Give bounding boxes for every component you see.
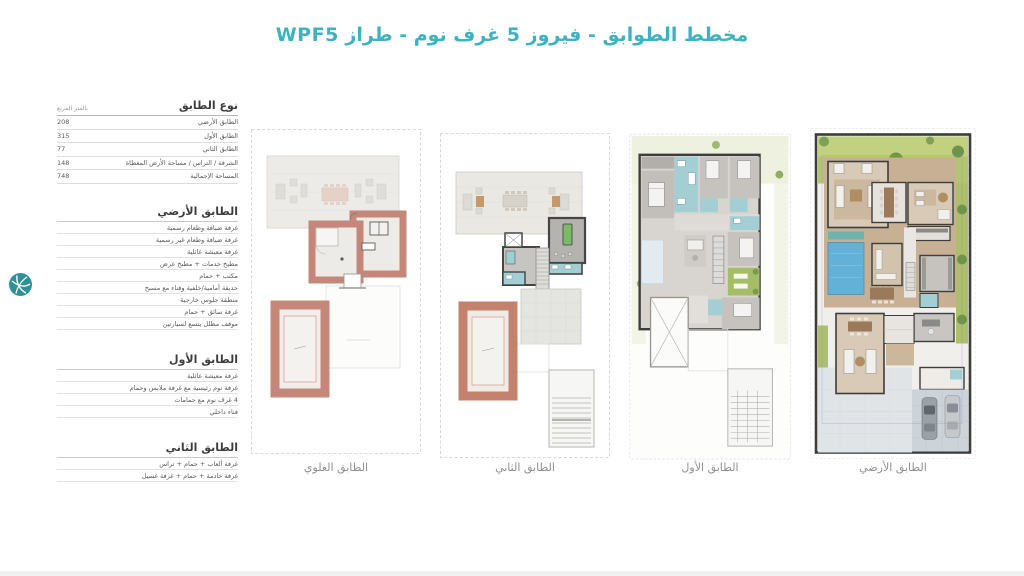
area-value: 748 bbox=[57, 172, 69, 180]
list-item: غرفة ضيافة وطعام رسمية bbox=[57, 222, 238, 234]
unit-label: بالمتر المربع bbox=[57, 105, 88, 112]
list-item: غرفة ألعاب + حمام + تراس bbox=[57, 458, 238, 470]
list-item: مطبخ خدمات + مطبخ عرض bbox=[57, 258, 238, 270]
area-table-header: بالمتر المربع نوع الطابق bbox=[57, 100, 238, 116]
list-item: فناء داخلي bbox=[57, 406, 238, 418]
section-title-ground-floor: الطابق الأرضي bbox=[57, 205, 238, 222]
list-item: غرفة خادمة + حمام + غرفة غسيل bbox=[57, 470, 238, 482]
floor-plan-sheet: مخطط الطوابق - فيروز 5 غرف نوم - طراز WP… bbox=[0, 0, 1024, 576]
floor-plan-upper bbox=[250, 128, 422, 455]
area-label: الطابق الأول bbox=[204, 132, 238, 140]
table-row: 77 الطابق الثاني bbox=[57, 143, 238, 157]
list-item: حديقة أمامية/خلفية وفناء مع مسبح bbox=[57, 282, 238, 294]
floor-plan-first bbox=[628, 133, 792, 460]
plan-label-upper: الطابق العلوي bbox=[250, 461, 422, 474]
page-title: مخطط الطوابق - فيروز 5 غرف نوم - طراز WP… bbox=[0, 24, 1024, 46]
floor-plan-ground bbox=[810, 127, 976, 460]
list-item: غرفة معيشة عائلية bbox=[57, 370, 238, 382]
table-row: 748 المساحة الإجمالية bbox=[57, 170, 238, 184]
plan-label-first: الطابق الأول bbox=[628, 461, 792, 474]
area-value: 315 bbox=[57, 132, 69, 140]
section-title-second-floor: الطابق الثاني bbox=[57, 441, 238, 458]
table-row: 148 الشرفة / التراس / مساحة الأرض المغطا… bbox=[57, 157, 238, 171]
list-item: غرفة سائق + حمام bbox=[57, 306, 238, 318]
area-label: الشرفة / التراس / مساحة الأرض المغطاة bbox=[126, 159, 238, 167]
list-item: مكتب + حمام bbox=[57, 270, 238, 282]
plan-label-second: الطابق الثاني bbox=[439, 461, 611, 474]
plan-label-ground: الطابق الأرضي bbox=[810, 461, 976, 474]
list-item: غرفة ضيافة وطعام غير رسمية bbox=[57, 234, 238, 246]
area-value: 77 bbox=[57, 145, 65, 153]
area-value: 148 bbox=[57, 159, 69, 167]
area-label: الطابق الأرضي bbox=[198, 118, 238, 126]
footer-divider bbox=[0, 571, 1024, 576]
table-row: 315 الطابق الأول bbox=[57, 130, 238, 144]
list-item: غرفة نوم رئيسية مع غرفة ملابس وحمام bbox=[57, 382, 238, 394]
section-title-first-floor: الطابق الأول bbox=[57, 353, 238, 370]
list-item: موقف مظلل يتسع لسيارتين bbox=[57, 318, 238, 330]
brand-logo-icon bbox=[8, 272, 33, 297]
floor-plan-second bbox=[439, 132, 611, 459]
area-label: الطابق الثاني bbox=[203, 145, 238, 153]
table-row: 208 الطابق الأرضي bbox=[57, 116, 238, 130]
floor-type-label: نوع الطابق bbox=[179, 99, 238, 112]
list-item: منطقة جلوس خارجية bbox=[57, 294, 238, 306]
list-item: 4 غرف نوم مع حمامات bbox=[57, 394, 238, 406]
area-label: المساحة الإجمالية bbox=[190, 172, 238, 180]
area-value: 208 bbox=[57, 118, 69, 126]
list-item: غرفة معيشة عائلية bbox=[57, 246, 238, 258]
area-sidebar: بالمتر المربع نوع الطابق 208 الطابق الأر… bbox=[57, 100, 238, 482]
